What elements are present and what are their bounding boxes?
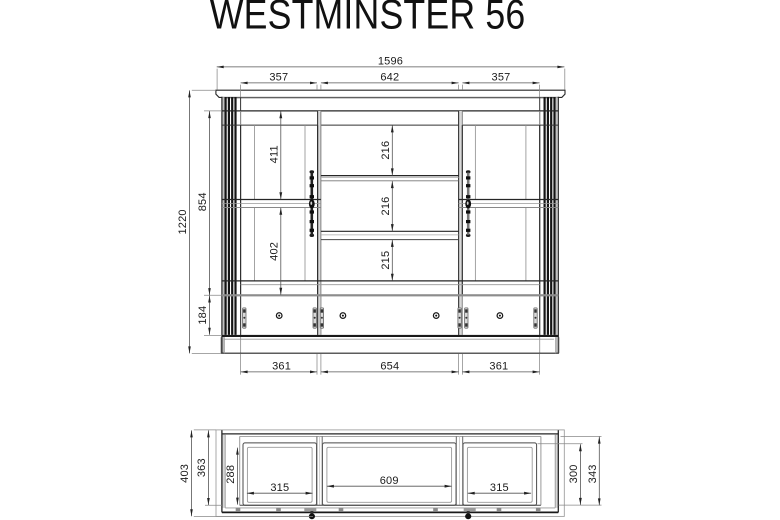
svg-text:300: 300	[568, 464, 580, 483]
svg-text:216: 216	[380, 141, 392, 160]
svg-text:343: 343	[587, 464, 599, 483]
svg-text:642: 642	[380, 72, 399, 84]
svg-text:654: 654	[380, 361, 399, 373]
svg-text:215: 215	[380, 251, 392, 270]
svg-text:315: 315	[490, 482, 509, 494]
svg-text:361: 361	[272, 361, 291, 373]
svg-text:357: 357	[269, 72, 288, 84]
svg-text:854: 854	[197, 192, 209, 211]
svg-text:1596: 1596	[378, 56, 403, 68]
svg-text:288: 288	[225, 465, 237, 484]
svg-text:184: 184	[197, 306, 209, 325]
svg-text:403: 403	[179, 464, 191, 483]
svg-text:609: 609	[380, 475, 399, 487]
svg-text:402: 402	[269, 242, 281, 261]
svg-text:363: 363	[196, 458, 208, 477]
svg-text:411: 411	[269, 145, 281, 163]
svg-text:216: 216	[380, 197, 392, 216]
svg-text:361: 361	[489, 361, 508, 373]
svg-text:315: 315	[270, 482, 289, 494]
svg-text:1220: 1220	[177, 209, 189, 234]
svg-text:WESTMINSTER 56: WESTMINSTER 56	[210, 0, 526, 38]
svg-text:357: 357	[492, 72, 511, 84]
